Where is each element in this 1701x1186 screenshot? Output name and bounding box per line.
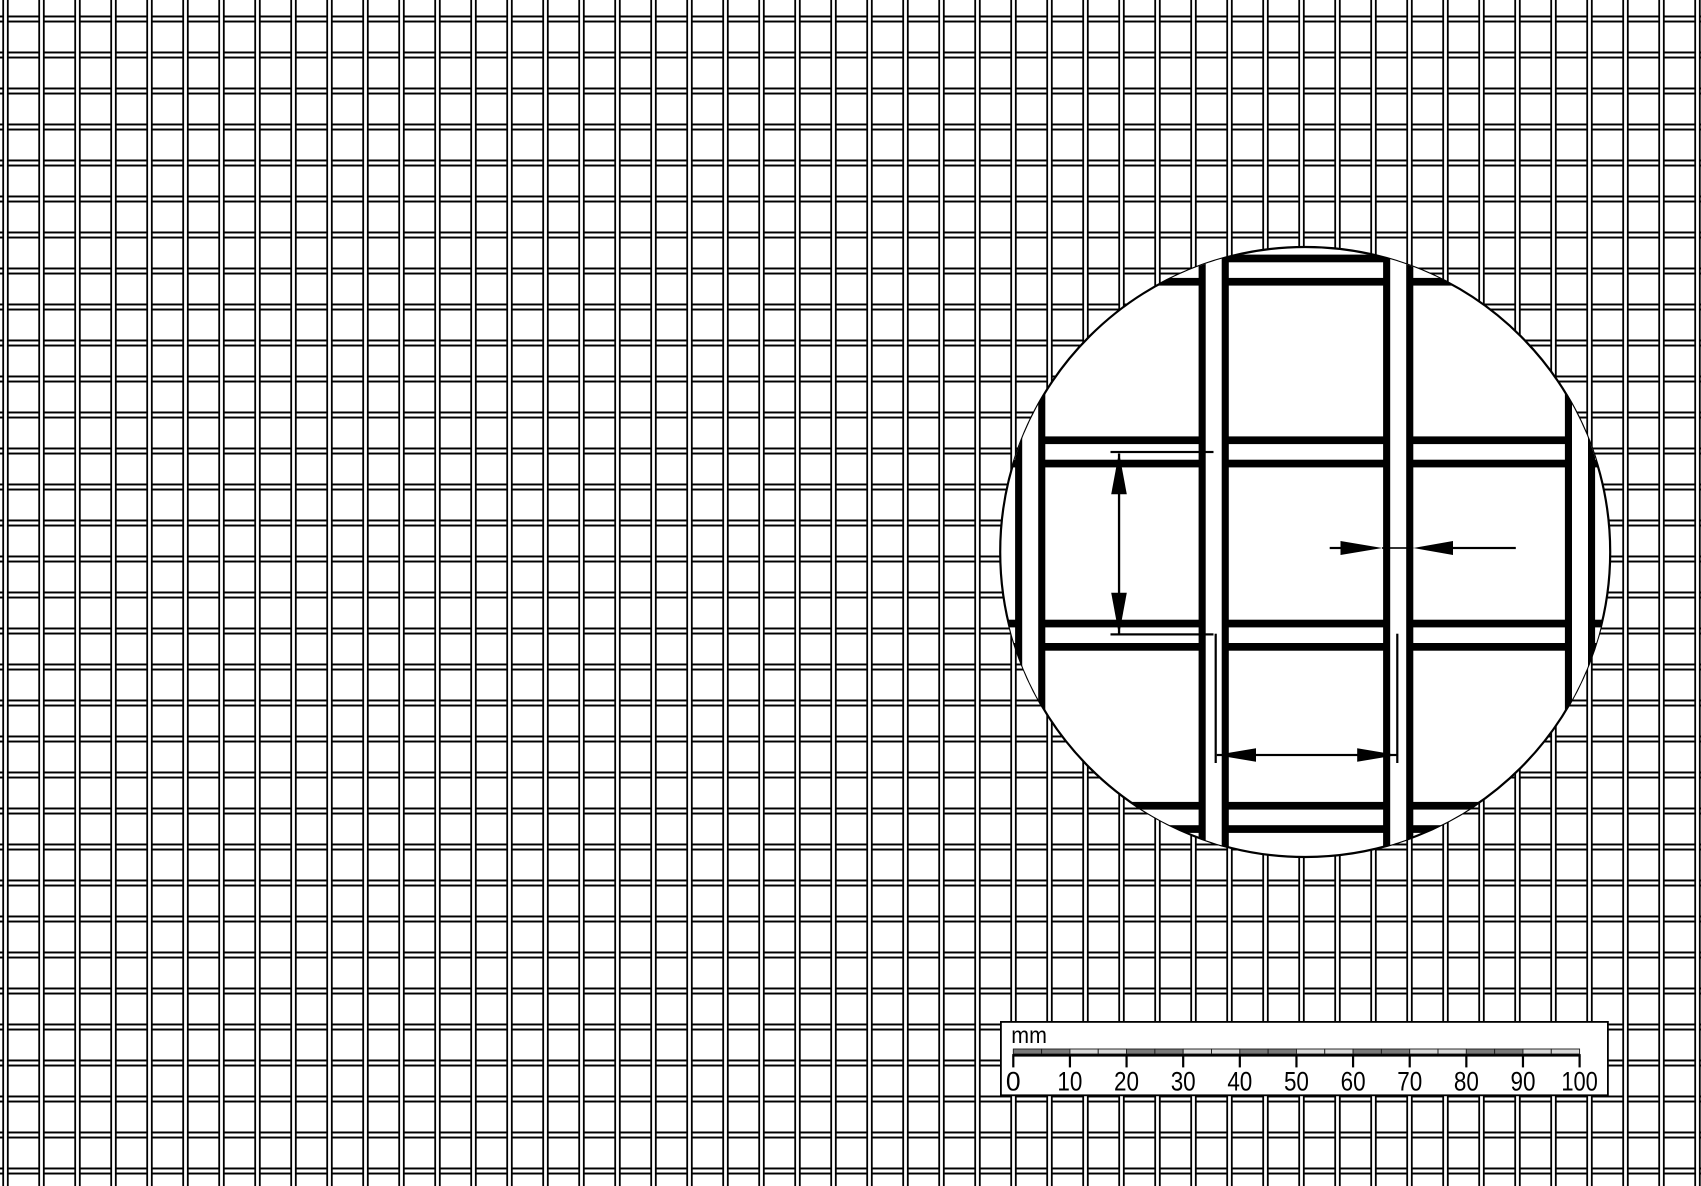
svg-text:mm: mm: [1011, 1022, 1047, 1048]
svg-text:90: 90: [1510, 1067, 1535, 1097]
svg-text:60: 60: [1341, 1067, 1366, 1097]
svg-text:10: 10: [1057, 1067, 1082, 1097]
svg-text:40: 40: [1227, 1067, 1252, 1097]
svg-text:70: 70: [1397, 1067, 1422, 1097]
svg-text:20: 20: [1114, 1067, 1139, 1097]
svg-text:30: 30: [1171, 1067, 1196, 1097]
svg-text:50: 50: [1284, 1067, 1309, 1097]
svg-text:80: 80: [1454, 1067, 1479, 1097]
svg-text:100: 100: [1561, 1067, 1598, 1097]
svg-text:0: 0: [1006, 1067, 1021, 1097]
